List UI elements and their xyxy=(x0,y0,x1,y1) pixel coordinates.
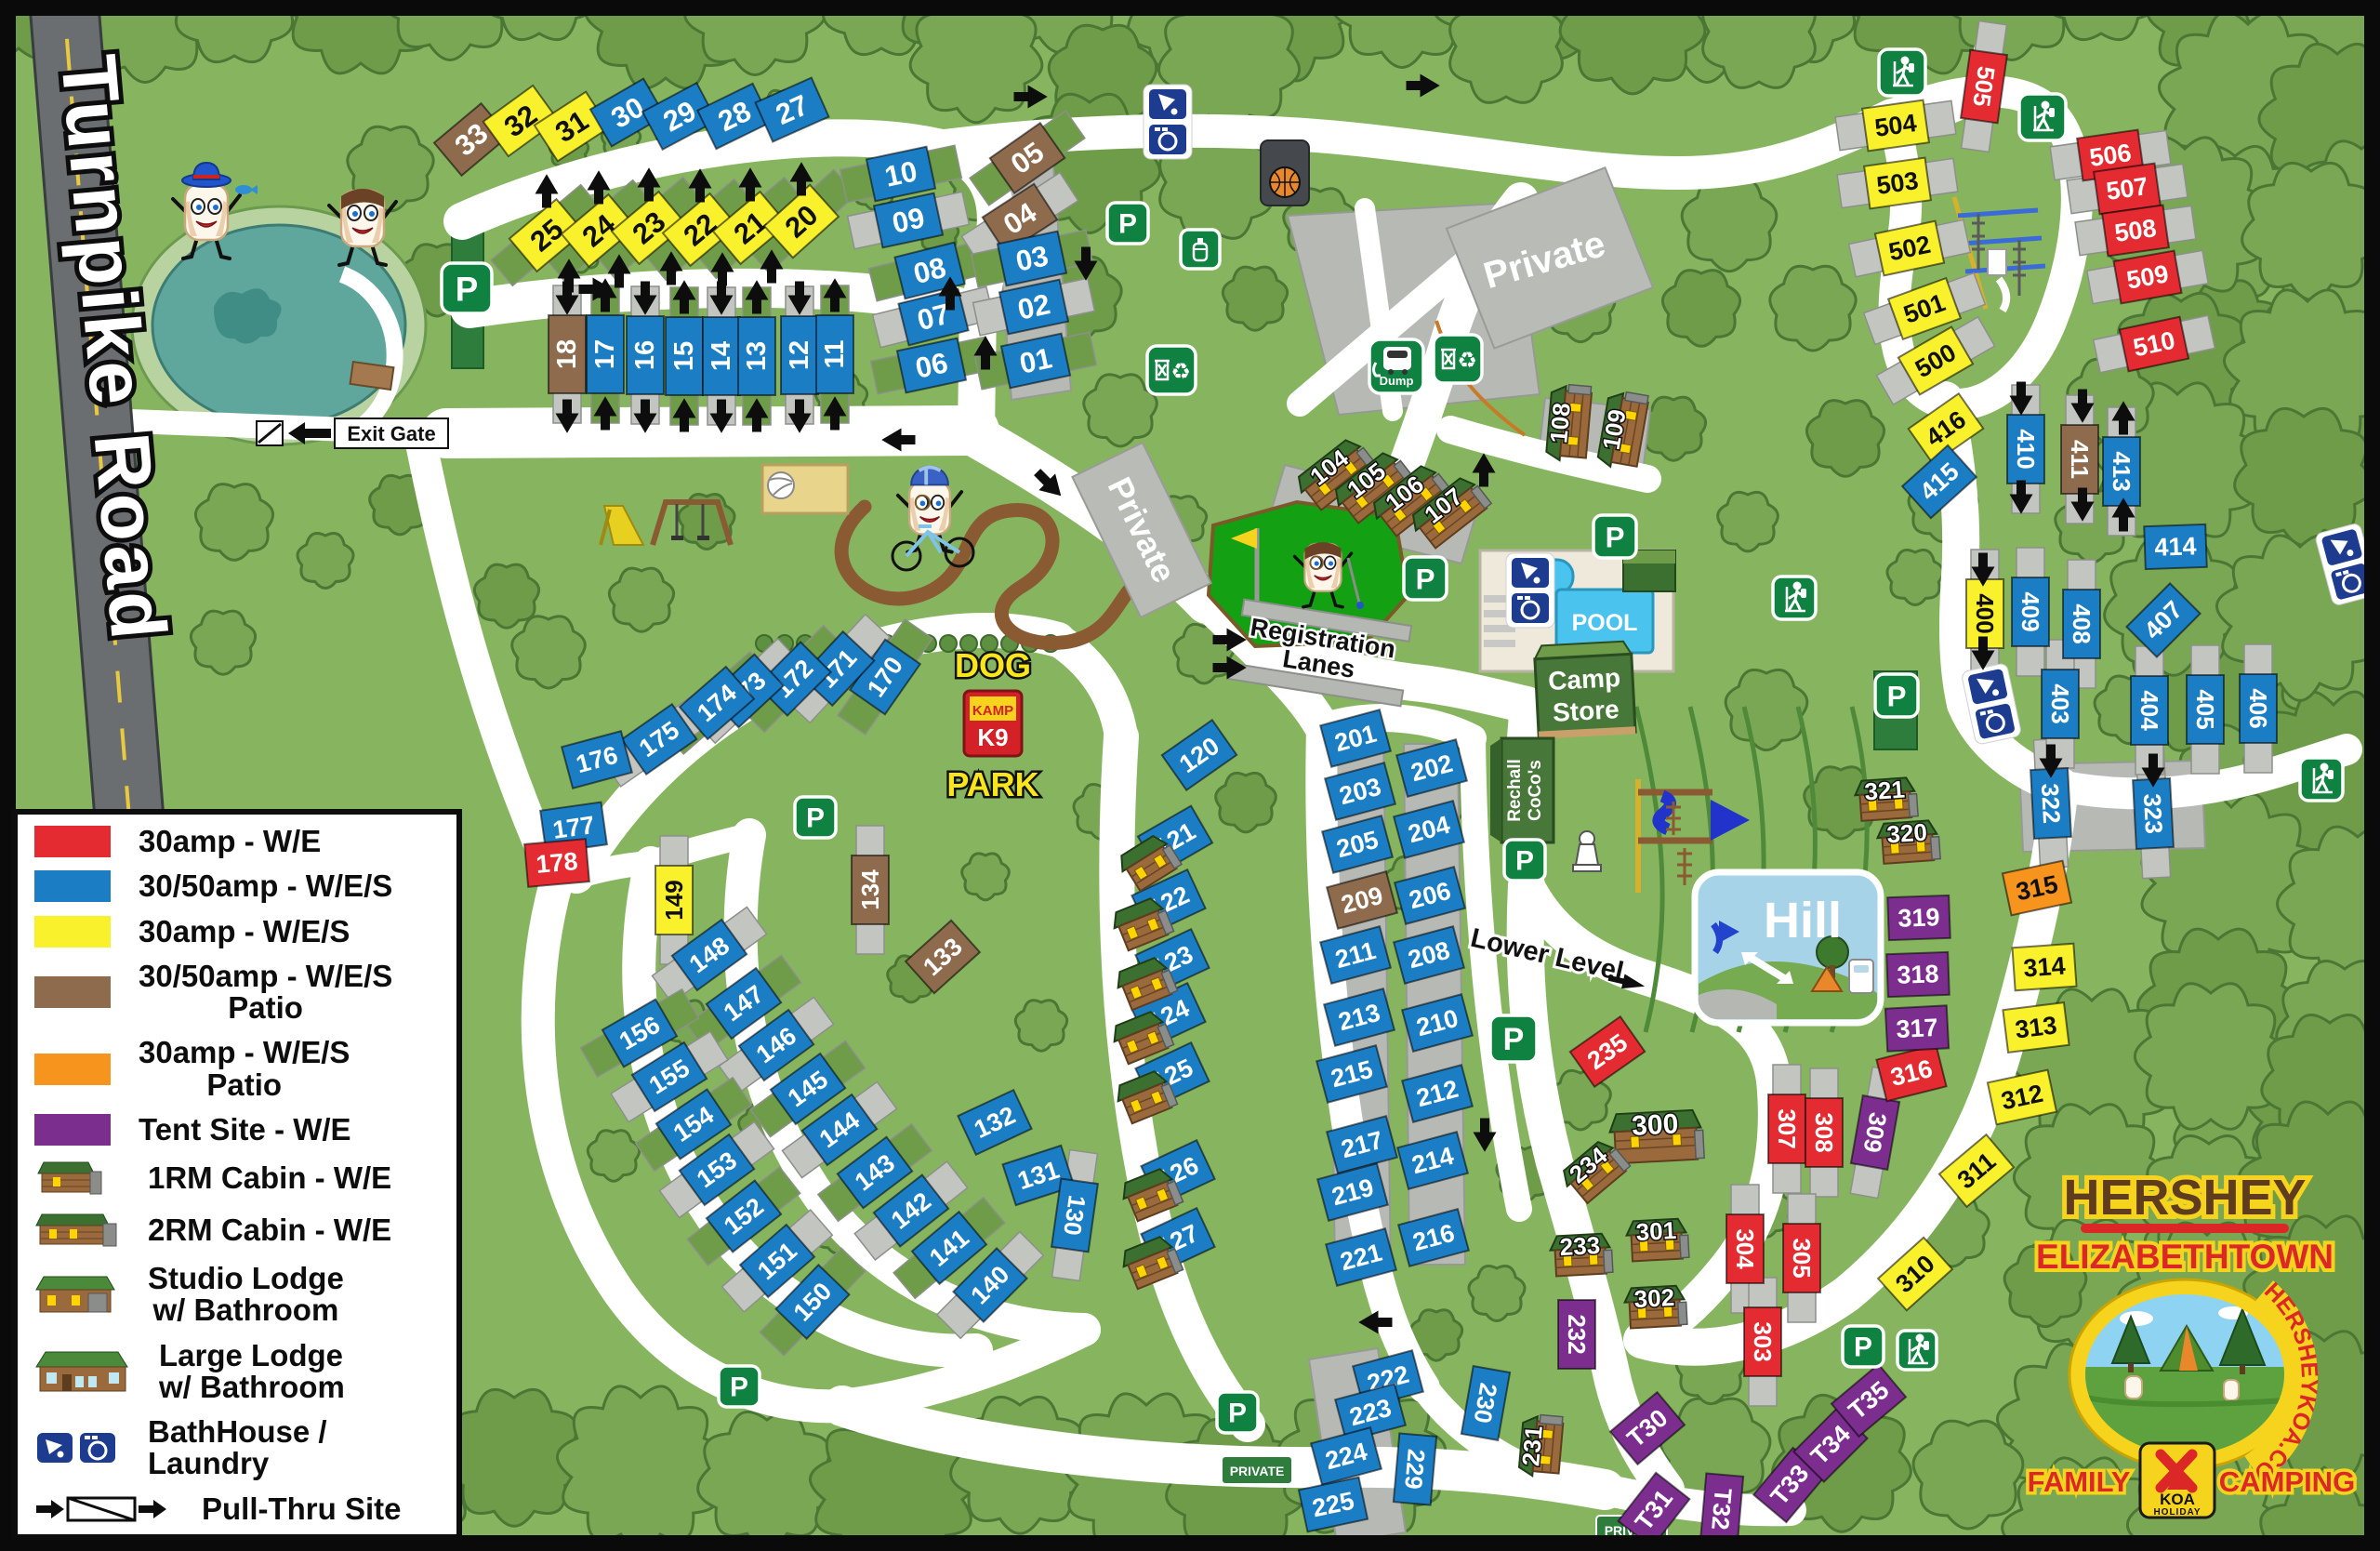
site-315: 315 xyxy=(2003,861,2071,916)
site-305: 305 xyxy=(1783,1224,1820,1292)
legend-row: 30/50amp - W/E/S xyxy=(34,870,447,902)
parking-icon: P xyxy=(1217,1392,1258,1433)
svg-text:P: P xyxy=(1416,563,1435,596)
site-314: 314 xyxy=(2012,944,2076,990)
logo-family: FAMILY xyxy=(2028,1465,2131,1498)
site-number: 313 xyxy=(2014,1011,2058,1043)
site-309: 309 xyxy=(1851,1095,1899,1170)
bathhouse-laundry-icon xyxy=(1506,553,1554,628)
tree xyxy=(1641,397,1705,460)
site-number: 10 xyxy=(881,154,919,192)
site-number: 134 xyxy=(856,869,884,910)
site-319: 319 xyxy=(1887,895,1950,940)
private-sign-1: PRIVATE xyxy=(1222,1456,1292,1484)
cabin-number: 320 xyxy=(1885,818,1927,849)
svg-text:Camp: Camp xyxy=(1547,663,1620,696)
site-number: 408 xyxy=(2068,603,2096,643)
site-229: 229 xyxy=(1394,1433,1436,1505)
legend-label: BathHouse / Laundry xyxy=(148,1416,447,1480)
hiking-trail-icon xyxy=(1897,1331,1937,1370)
site-number: 319 xyxy=(1897,903,1940,933)
koa-logo: HERSHEY ELIZABETHTOWN HERSHEYKOA.COM KOA… xyxy=(2028,1170,2356,1518)
site-230: 230 xyxy=(1461,1366,1510,1440)
svg-text:P: P xyxy=(1228,1399,1247,1429)
hiking-trail-icon xyxy=(2019,94,2066,140)
site-number: 15 xyxy=(669,341,699,371)
site-number: 303 xyxy=(1749,1321,1777,1361)
site-number: 318 xyxy=(1897,960,1939,989)
tree xyxy=(910,0,1042,123)
site-number: 09 xyxy=(889,201,927,239)
legend-row: 30amp - W/E/S xyxy=(34,916,447,948)
cabin-321: 321 xyxy=(1854,775,1918,821)
svg-text:P: P xyxy=(1118,209,1137,240)
dog-park-sign: DOG KAMP K9 PARK xyxy=(946,646,1038,803)
cabin-231: 231 xyxy=(1515,1413,1564,1478)
site-number: 229 xyxy=(1399,1448,1431,1491)
tree xyxy=(1223,267,1287,330)
legend-label: Tent Site - W/E xyxy=(139,1114,351,1146)
site-413: 413 xyxy=(2103,437,2140,506)
svg-text:K9: K9 xyxy=(977,723,1008,751)
legend-row: Large Lodgew/ Bathroom xyxy=(34,1340,447,1404)
pull-thru-icon xyxy=(34,1493,174,1525)
site-132: 132 xyxy=(958,1090,1031,1155)
legend-label: Large Lodgew/ Bathroom xyxy=(159,1340,345,1404)
bathhouse-laundry-icon xyxy=(1144,85,1192,159)
parking-icon: P xyxy=(1875,674,1918,717)
site-number: 17 xyxy=(590,339,620,369)
site-120: 120 xyxy=(1162,720,1236,790)
site-11: 11 xyxy=(816,315,853,393)
site-number: 505 xyxy=(1967,64,2001,108)
tree xyxy=(1718,492,1778,551)
site-number: 178 xyxy=(535,847,579,879)
site-number: 508 xyxy=(2113,214,2159,247)
direction-arrow xyxy=(1407,74,1440,98)
legend-row: Studio Lodgew/ Bathroom xyxy=(34,1263,447,1327)
site-409: 409 xyxy=(2012,577,2049,646)
site-number: 405 xyxy=(2191,689,2219,729)
site-number: 18 xyxy=(552,339,582,369)
cabin-porch xyxy=(1931,837,1941,860)
site-number: 01 xyxy=(1016,341,1054,379)
site-number: 504 xyxy=(1873,109,1919,142)
site-number: T32 xyxy=(1706,1487,1738,1531)
koa-holiday-badge: KOA HOLIDAY xyxy=(2140,1443,2215,1518)
parking-icon: P xyxy=(1843,1326,1884,1367)
cabin-number: 233 xyxy=(1559,1231,1601,1261)
site-number: 307 xyxy=(1773,1108,1801,1148)
site-508: 508 xyxy=(2102,205,2169,257)
legend-row: BathHouse / Laundry xyxy=(34,1416,447,1480)
site-414: 414 xyxy=(2144,524,2207,569)
legend-row: 30/50amp - W/E/SPatio xyxy=(34,961,447,1025)
cabin-porch xyxy=(1604,1250,1613,1272)
pond-dock xyxy=(350,362,394,390)
cabin-302: 302 xyxy=(1624,1282,1687,1328)
cabin-number: 302 xyxy=(1633,1283,1675,1313)
legend-label: 2RM Cabin - W/E xyxy=(148,1214,391,1246)
site-number: 308 xyxy=(1810,1112,1838,1152)
volleyball-court xyxy=(762,465,848,513)
site-number: 13 xyxy=(742,341,772,371)
purple-swatch xyxy=(34,1114,111,1146)
svg-text:P: P xyxy=(1515,846,1534,877)
tree xyxy=(191,611,255,674)
svg-text:KAMP: KAMP xyxy=(972,703,1013,719)
site-number: 304 xyxy=(1731,1228,1759,1269)
parking-icon: P xyxy=(1504,840,1545,881)
svg-text:KOA: KOA xyxy=(2160,1491,2195,1508)
site-404: 404 xyxy=(2131,676,2168,745)
site-502: 502 xyxy=(1875,221,1944,276)
legend-label: 1RM Cabin - W/E xyxy=(148,1162,391,1194)
cabin-porch xyxy=(1540,1415,1563,1425)
site-number: 02 xyxy=(1014,287,1052,325)
cabin-porch xyxy=(1680,1235,1689,1257)
fishing-pond xyxy=(132,206,426,444)
site-307: 307 xyxy=(1768,1094,1805,1163)
svg-text:Hill: Hill xyxy=(1764,893,1842,948)
site-403: 403 xyxy=(2042,669,2079,738)
basketball-court-icon xyxy=(1261,140,1309,205)
hill-infographic: Hill xyxy=(1695,872,1881,1023)
svg-text:P: P xyxy=(806,803,825,834)
site-13: 13 xyxy=(738,317,775,395)
svg-text:HOLIDAY: HOLIDAY xyxy=(2153,1507,2201,1518)
blue-swatch xyxy=(34,870,111,902)
tree xyxy=(512,616,586,688)
parking-icon: P xyxy=(1593,515,1636,558)
legend-label: 30/50amp - W/E/S xyxy=(139,870,392,902)
site-317: 317 xyxy=(1885,1005,1949,1051)
svg-text:P: P xyxy=(730,1372,748,1403)
rec-hall-cocos: Rechall CoCo's xyxy=(1490,738,1554,842)
site-504: 504 xyxy=(1862,100,1929,152)
cabin-1rm-icon xyxy=(34,1159,120,1198)
site-number: 406 xyxy=(2244,688,2272,728)
site-15: 15 xyxy=(666,317,703,395)
recycle-trash-icon: ♻ xyxy=(1147,346,1196,394)
site-232: 232 xyxy=(1558,1300,1595,1369)
tree xyxy=(1662,271,1739,347)
site-number: 232 xyxy=(1563,1314,1591,1354)
svg-text:CoCo's: CoCo's xyxy=(1526,760,1545,821)
tree xyxy=(1216,773,1276,832)
large-lodge-icon xyxy=(34,1348,131,1395)
site-14: 14 xyxy=(703,317,740,395)
site-number: 317 xyxy=(1896,1014,1939,1043)
site-323: 323 xyxy=(2133,778,2174,849)
tree xyxy=(195,484,272,561)
tree xyxy=(297,534,353,589)
legend-row: 30amp - W/E xyxy=(34,826,447,857)
site-number: 507 xyxy=(2105,172,2150,205)
svg-text:P: P xyxy=(456,271,479,309)
site-16: 16 xyxy=(627,316,664,394)
site-number: 410 xyxy=(2012,429,2040,469)
cabin-2rm-icon xyxy=(34,1211,120,1250)
parking-icon: P xyxy=(719,1366,760,1407)
parking-icon: P xyxy=(1107,203,1148,244)
orange-swatch xyxy=(34,1054,111,1085)
site-178: 178 xyxy=(524,839,589,887)
svg-text:PRIVATE: PRIVATE xyxy=(1230,1464,1285,1478)
cabin-porch xyxy=(1568,385,1592,395)
chess-pawn-icon xyxy=(1573,831,1601,871)
brown-swatch xyxy=(34,976,111,1008)
site-number: 404 xyxy=(2135,690,2163,731)
logo-camping: CAMPING xyxy=(2219,1465,2355,1498)
logo-elizabethtown: ELIZABETHTOWN xyxy=(2036,1238,2334,1276)
parking-icon: P xyxy=(442,263,492,313)
site-410: 410 xyxy=(2007,415,2044,484)
site-number: 322 xyxy=(2036,783,2066,825)
legend-label: Pull-Thru Site xyxy=(202,1493,402,1525)
cabin-301: 301 xyxy=(1626,1215,1689,1261)
camp-store: Camp Store xyxy=(1534,641,1635,738)
site-number: 11 xyxy=(820,340,850,369)
site-408: 408 xyxy=(2063,590,2100,658)
site-number: 12 xyxy=(785,340,814,370)
tree xyxy=(2135,984,2286,1130)
svg-text:P: P xyxy=(1854,1332,1872,1363)
legend-row: 1RM Cabin - W/E xyxy=(34,1159,447,1198)
site-304: 304 xyxy=(1726,1214,1764,1283)
site-149: 149 xyxy=(655,866,693,935)
tree xyxy=(557,1386,723,1551)
bathhouse-laundry-icon xyxy=(34,1428,120,1467)
legend-label: 30amp - W/E xyxy=(139,826,321,857)
site-number: 314 xyxy=(2022,951,2066,982)
legend-label: 30/50amp - W/E/SPatio xyxy=(139,961,392,1025)
tree xyxy=(1770,266,1856,351)
legend-row: Pull-Thru Site xyxy=(34,1493,447,1525)
site-411: 411 xyxy=(2061,425,2098,494)
propane-icon xyxy=(1181,230,1220,269)
cabin-porch xyxy=(1695,1130,1705,1158)
site-406: 406 xyxy=(2240,674,2277,743)
cabin-233: 233 xyxy=(1550,1230,1613,1276)
svg-text:P: P xyxy=(1503,1022,1525,1057)
tree xyxy=(1682,179,1777,272)
tree xyxy=(1015,1001,1066,1052)
tree xyxy=(1725,669,1807,749)
cabin-320: 320 xyxy=(1876,817,1940,864)
site-322: 322 xyxy=(2030,768,2071,839)
site-18: 18 xyxy=(549,315,586,393)
svg-text:♻: ♻ xyxy=(1170,360,1191,385)
cabin-number: 321 xyxy=(1863,775,1905,806)
svg-text:PARK: PARK xyxy=(946,765,1038,803)
parking-icon: P xyxy=(795,797,836,838)
site-303: 303 xyxy=(1744,1307,1781,1376)
yellow-swatch xyxy=(34,916,111,948)
dump-station-icon: Dump xyxy=(1369,339,1423,393)
site-308: 308 xyxy=(1805,1098,1843,1167)
site-505: 505 xyxy=(1961,50,2007,124)
legend: 30amp - W/E 30/50amp - W/E/S 30amp - W/E… xyxy=(12,809,462,1540)
cabin-108: 108 xyxy=(1543,383,1593,463)
svg-text:P: P xyxy=(1606,522,1625,554)
recycle-trash-icon: ♻ xyxy=(1434,335,1482,383)
cabin-300: 300 xyxy=(1608,1107,1704,1164)
svg-text:♻: ♻ xyxy=(1457,349,1477,374)
cabin-number: 231 xyxy=(1516,1425,1548,1467)
parking-icon: P xyxy=(1490,1015,1537,1062)
site-313: 313 xyxy=(2003,1002,2069,1053)
cabin-porch xyxy=(1909,794,1919,817)
legend-row: Tent Site - W/E xyxy=(34,1114,447,1146)
cabin-number: 301 xyxy=(1635,1216,1677,1246)
site-number: 16 xyxy=(630,340,660,370)
site-number: 403 xyxy=(2046,683,2074,723)
red-swatch xyxy=(34,826,111,857)
legend-row: 30amp - W/E/SPatio xyxy=(34,1037,447,1101)
legend-label: Studio Lodgew/ Bathroom xyxy=(148,1263,344,1327)
site-number: 323 xyxy=(2138,793,2168,835)
campground-map: POOL Camp Store Rechall CoCo's xyxy=(0,0,2380,1551)
cabin-number: 108 xyxy=(1544,402,1576,444)
site-number: 400 xyxy=(1971,593,1999,633)
site-number: 414 xyxy=(2154,532,2197,562)
svg-text:Rechall: Rechall xyxy=(1505,759,1525,822)
logo-hershey: HERSHEY xyxy=(2063,1170,2306,1226)
cabin-number: 300 xyxy=(1631,1108,1679,1142)
site-number: 305 xyxy=(1788,1238,1816,1278)
svg-text:Dump: Dump xyxy=(1380,374,1414,388)
site-06: 06 xyxy=(897,338,966,393)
site-number: 130 xyxy=(1058,1193,1091,1237)
studio-lodge-icon xyxy=(34,1273,120,1316)
site-17: 17 xyxy=(587,315,624,393)
hiking-trail-icon xyxy=(2300,758,2343,801)
site-12: 12 xyxy=(781,316,818,394)
site-number: 14 xyxy=(707,341,736,371)
pool-label: POOL xyxy=(1572,610,1638,636)
tree xyxy=(1887,550,1943,605)
legend-label: 30amp - W/E/S xyxy=(139,916,350,948)
site-405: 405 xyxy=(2187,675,2224,744)
tree xyxy=(588,1131,639,1182)
parking-icon: P xyxy=(1404,557,1447,600)
site-T32: T32 xyxy=(1700,1473,1743,1544)
direction-arrow xyxy=(1473,453,1496,486)
tree xyxy=(609,568,673,631)
hiking-trail-icon xyxy=(1773,577,1816,619)
site-number: 03 xyxy=(1012,239,1051,277)
legend-label: 30amp - W/E/SPatio xyxy=(139,1037,350,1101)
cabin-porch xyxy=(1678,1302,1687,1324)
tree xyxy=(1806,401,1884,477)
site-number: 503 xyxy=(1875,166,1921,200)
svg-text:DOG: DOG xyxy=(955,646,1031,684)
site-number: 413 xyxy=(2108,451,2135,491)
site-503: 503 xyxy=(1864,158,1931,209)
site-134: 134 xyxy=(852,855,889,924)
hiking-trail-icon xyxy=(1879,49,1925,96)
tree xyxy=(1469,1266,1525,1321)
site-number: 409 xyxy=(2016,591,2044,631)
site-number: 411 xyxy=(2066,440,2094,479)
legend-row: 2RM Cabin - W/E xyxy=(34,1211,447,1250)
svg-text:P: P xyxy=(1887,681,1907,713)
tree xyxy=(962,854,1010,900)
site-316: 316 xyxy=(1876,1045,1946,1102)
svg-text:Store: Store xyxy=(1552,695,1620,727)
svg-text:Exit Gate: Exit Gate xyxy=(347,422,435,445)
tree xyxy=(474,564,538,628)
site-number: 06 xyxy=(912,346,950,384)
site-number: 149 xyxy=(660,880,688,920)
site-318: 318 xyxy=(1886,952,1950,997)
